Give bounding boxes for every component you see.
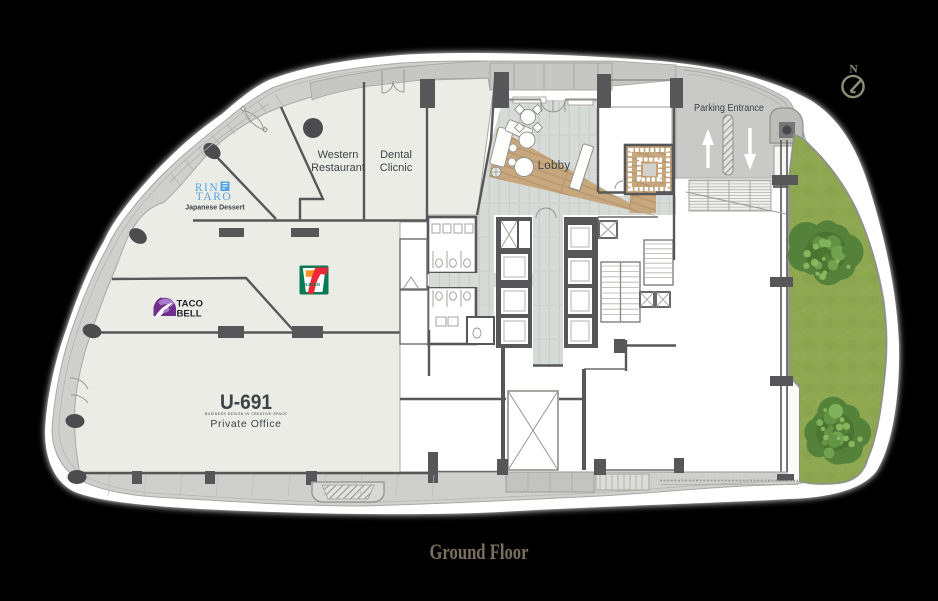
svg-text:U-691: U-691: [220, 391, 272, 414]
svg-text:WesternRestaurant: WesternRestaurant: [311, 149, 365, 174]
svg-text:BELL: BELL: [177, 309, 202, 320]
svg-text:Ground Floor: Ground Floor: [430, 539, 529, 564]
svg-text:Parking Entrance: Parking Entrance: [694, 103, 764, 114]
svg-text:DentalClicnic: DentalClicnic: [380, 149, 413, 174]
svg-text:Private Office: Private Office: [210, 418, 281, 430]
svg-text:BUSINESS DESIGN IN CREATIVE SP: BUSINESS DESIGN IN CREATIVE SPACE: [205, 412, 288, 416]
svg-text:TARO: TARO: [196, 191, 232, 203]
svg-text:N: N: [849, 64, 858, 76]
svg-text:ELEVEN: ELEVEN: [303, 282, 320, 287]
svg-text:Japanese Dessert: Japanese Dessert: [185, 205, 245, 212]
svg-text:Lobby: Lobby: [538, 160, 571, 172]
